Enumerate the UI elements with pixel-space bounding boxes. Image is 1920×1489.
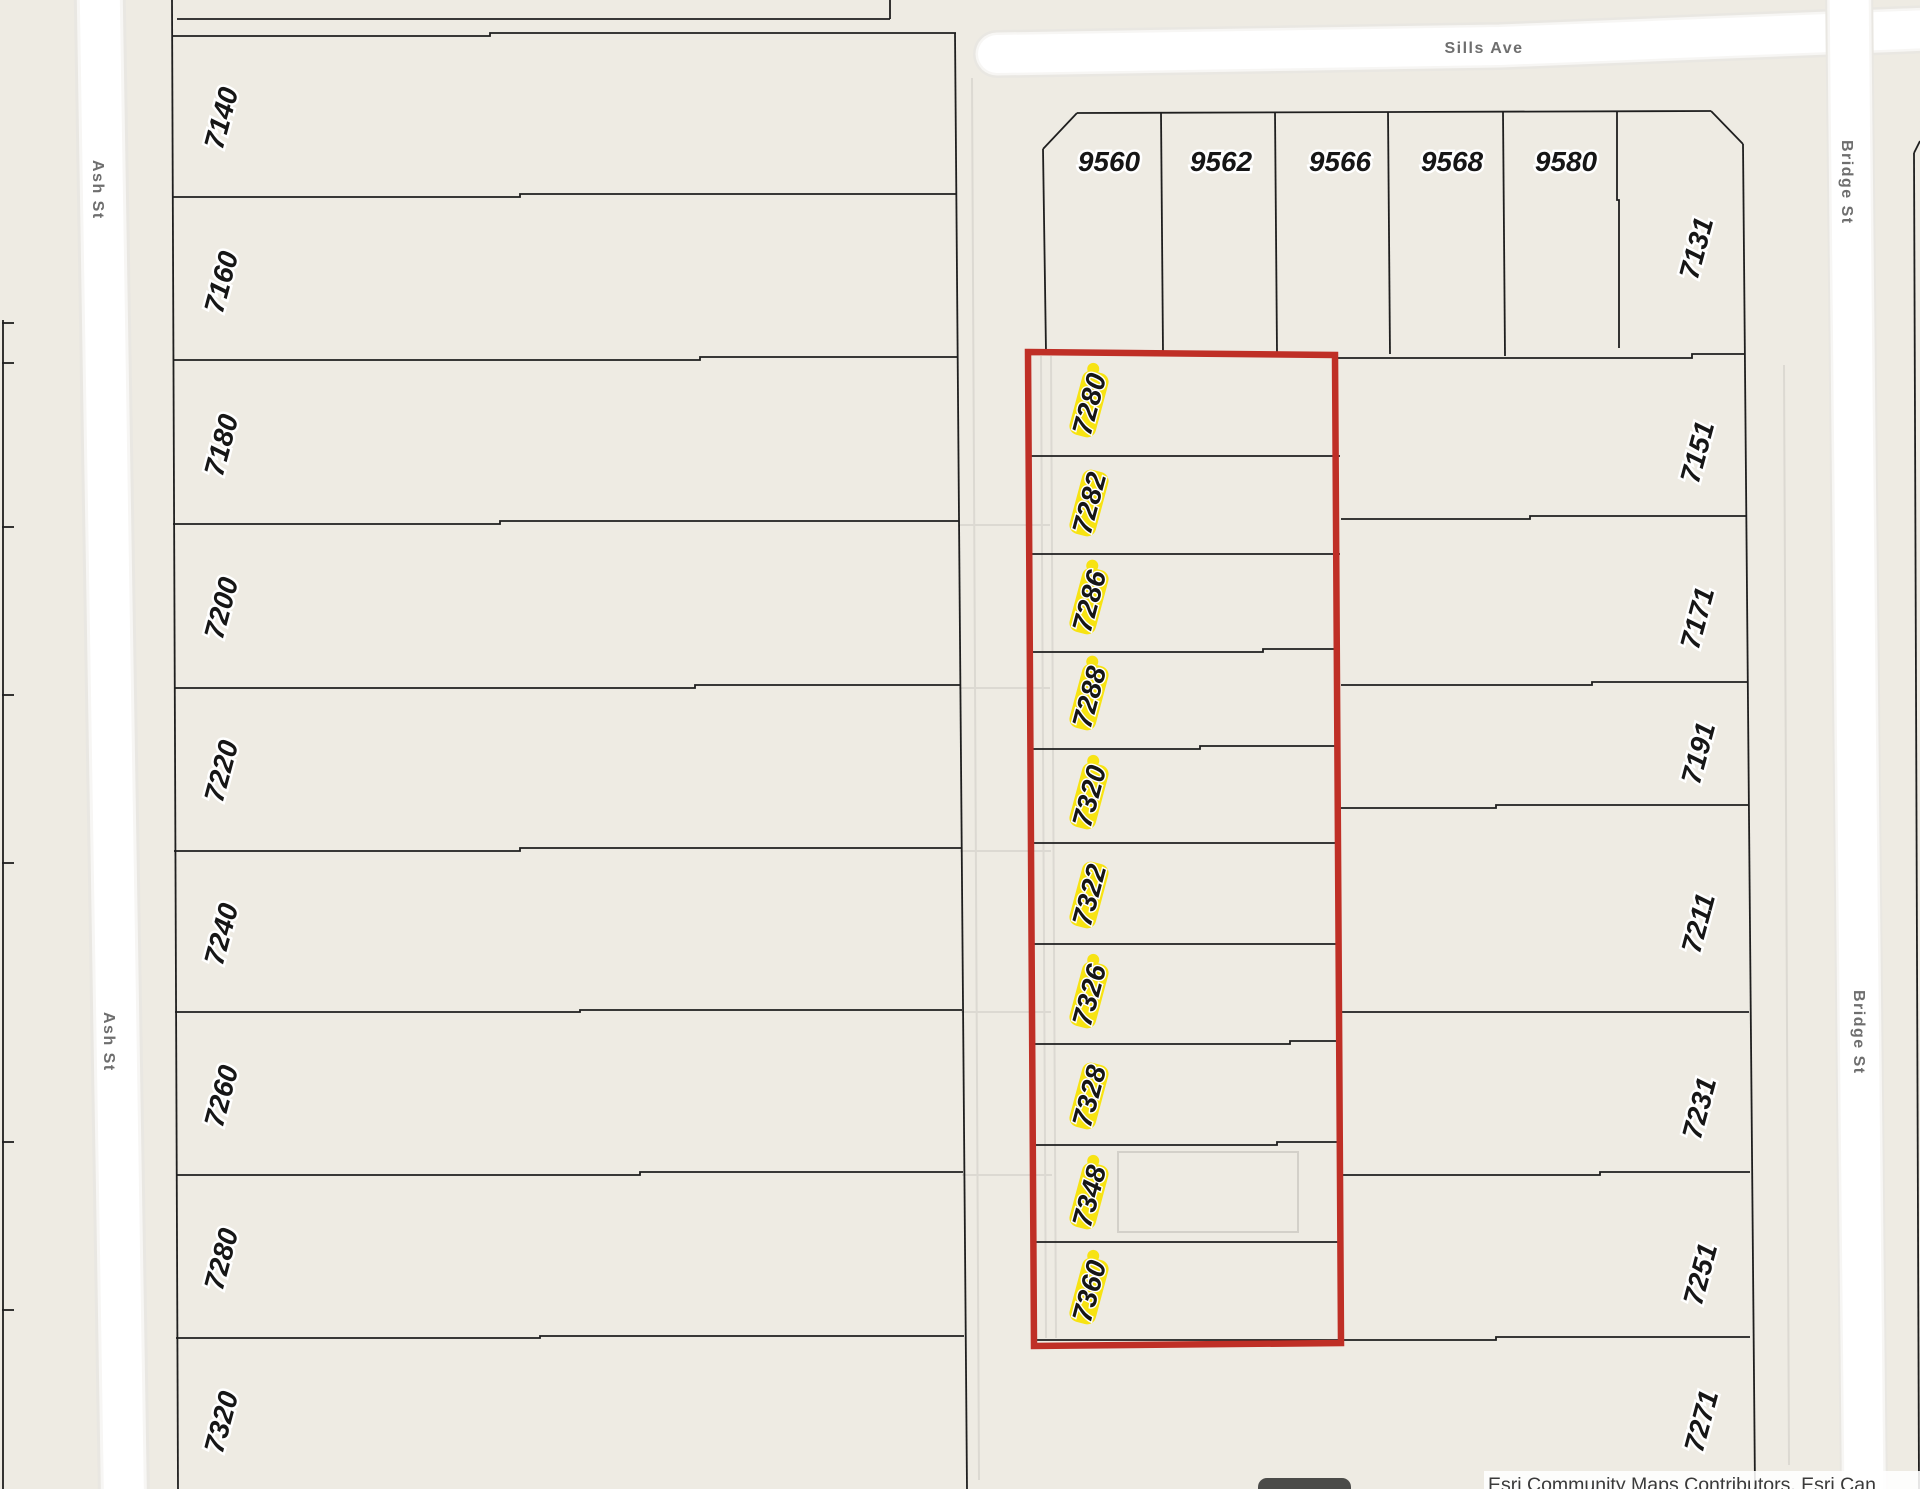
svg-text:9580: 9580: [1535, 146, 1598, 177]
svg-text:Bridge St: Bridge St: [1850, 990, 1867, 1075]
svg-text:Ash St: Ash St: [100, 1012, 117, 1072]
svg-text:Bridge St: Bridge St: [1838, 140, 1855, 225]
svg-text:9568: 9568: [1421, 146, 1484, 177]
svg-text:9562: 9562: [1190, 146, 1253, 177]
svg-text:Ash St: Ash St: [89, 160, 106, 220]
svg-text:Esri Community Maps Contributo: Esri Community Maps Contributors, Esri C…: [1488, 1474, 1876, 1489]
svg-text:9566: 9566: [1309, 146, 1372, 177]
svg-text:9560: 9560: [1078, 146, 1141, 177]
svg-text:Sills Ave: Sills Ave: [1444, 40, 1523, 57]
